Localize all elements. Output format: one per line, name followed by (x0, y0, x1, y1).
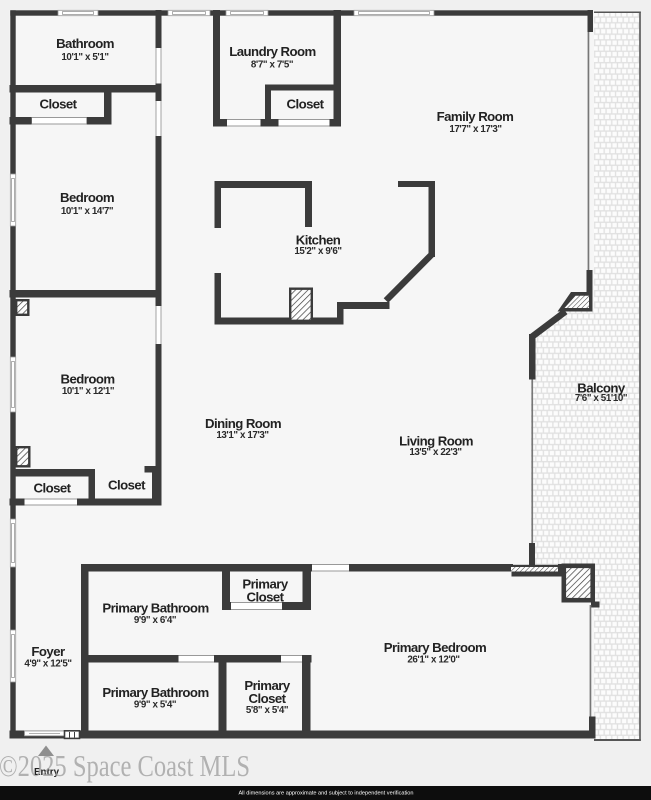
svg-text:10'1" x 5'1": 10'1" x 5'1" (61, 52, 108, 63)
svg-text:Bedroom: Bedroom (60, 372, 114, 387)
svg-text:Primary Bathroom: Primary Bathroom (102, 685, 208, 700)
svg-text:Bedroom: Bedroom (60, 190, 114, 205)
svg-text:Closet: Closet (108, 478, 146, 493)
svg-text:13'5" x 22'3": 13'5" x 22'3" (409, 447, 461, 458)
svg-text:Family Room: Family Room (437, 109, 514, 124)
svg-text:4'9" x 12'5": 4'9" x 12'5" (24, 659, 71, 670)
svg-text:10'1" x 14'7": 10'1" x 14'7" (61, 206, 113, 217)
svg-text:Dining Room: Dining Room (205, 416, 281, 431)
svg-text:26'1" x 12'0": 26'1" x 12'0" (407, 655, 459, 666)
svg-text:Primary Bathroom: Primary Bathroom (102, 601, 208, 616)
svg-text:15'2" x 9'6": 15'2" x 9'6" (294, 246, 341, 257)
svg-text:Bathroom: Bathroom (56, 36, 114, 51)
svg-text:10'1" x 12'1": 10'1" x 12'1" (62, 386, 114, 397)
svg-text:Closet: Closet (33, 481, 71, 496)
svg-text:Laundry Room: Laundry Room (229, 44, 315, 59)
svg-text:17'7" x 17'3": 17'7" x 17'3" (449, 124, 501, 135)
svg-text:9'9" x 5'4": 9'9" x 5'4" (134, 700, 176, 711)
svg-text:All dimensions are approximate: All dimensions are approximate and subje… (238, 791, 413, 797)
svg-text:Closet: Closet (246, 590, 284, 605)
svg-text:Closet: Closet (286, 97, 324, 112)
svg-text:Primary Bedroom: Primary Bedroom (384, 640, 486, 655)
svg-text:13'1" x 17'3": 13'1" x 17'3" (216, 430, 268, 441)
svg-text:8'7" x 7'5": 8'7" x 7'5" (251, 60, 293, 71)
svg-text:7'6" x 51'10": 7'6" x 51'10" (575, 393, 627, 404)
svg-text:Closet: Closet (39, 97, 77, 112)
svg-text:9'9" x 6'4": 9'9" x 6'4" (134, 615, 176, 626)
svg-text:Closet: Closet (248, 691, 286, 706)
svg-text:5'8" x 5'4": 5'8" x 5'4" (246, 705, 288, 716)
svg-text:Foyer: Foyer (31, 644, 65, 659)
svg-text:©2025 Space Coast MLS: ©2025 Space Coast MLS (0, 748, 250, 783)
